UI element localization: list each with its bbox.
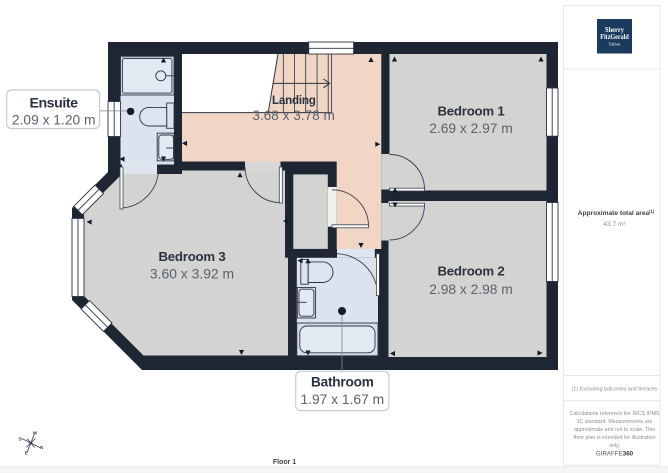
svg-text:Floor 1: Floor 1: [273, 459, 296, 466]
svg-text:E: E: [25, 451, 28, 456]
svg-text:Bedroom 2: Bedroom 2: [437, 264, 504, 279]
svg-text:N: N: [40, 445, 44, 450]
svg-text:GIRAFFE360: GIRAFFE360: [596, 451, 634, 458]
svg-text:Bedroom 3: Bedroom 3: [158, 249, 225, 264]
svg-text:3C standard. Measurements are: 3C standard. Measurements are: [577, 419, 653, 425]
svg-text:S: S: [18, 437, 21, 442]
svg-text:Ensuite: Ensuite: [29, 95, 78, 111]
svg-text:3.60 x 3.92 m: 3.60 x 3.92 m: [150, 266, 234, 282]
svg-text:Calculations reference the RIC: Calculations reference the RICS IPMS: [569, 411, 660, 417]
svg-text:floor plan is intended for ill: floor plan is intended for illustration: [574, 435, 656, 441]
svg-text:2.69 x 2.97 m: 2.69 x 2.97 m: [429, 121, 513, 136]
svg-text:2.09 x 1.20 m: 2.09 x 1.20 m: [12, 112, 96, 127]
svg-text:Bathroom: Bathroom: [311, 375, 374, 390]
svg-text:W: W: [33, 431, 38, 436]
svg-text:FitzGerald: FitzGerald: [600, 32, 629, 41]
svg-text:2.98 x 2.98 m: 2.98 x 2.98 m: [429, 282, 513, 297]
svg-text:3.68 x 3.78 m: 3.68 x 3.78 m: [252, 108, 334, 123]
svg-text:only.: only.: [609, 443, 620, 449]
svg-text:(1) Excluding balconies and te: (1) Excluding balconies and terraces: [572, 387, 658, 393]
svg-text:Bedroom 1: Bedroom 1: [437, 103, 504, 118]
svg-text:Approximate total area(1): Approximate total area(1): [578, 209, 655, 217]
svg-text:Talbot: Talbot: [609, 43, 622, 47]
svg-text:Landing: Landing: [272, 94, 316, 107]
svg-text:approximate and not to scale.: approximate and not to scale. This: [574, 427, 655, 433]
svg-text:1.97 x 1.67 m: 1.97 x 1.67 m: [300, 392, 384, 407]
svg-text:43.7 m²: 43.7 m²: [603, 221, 626, 228]
